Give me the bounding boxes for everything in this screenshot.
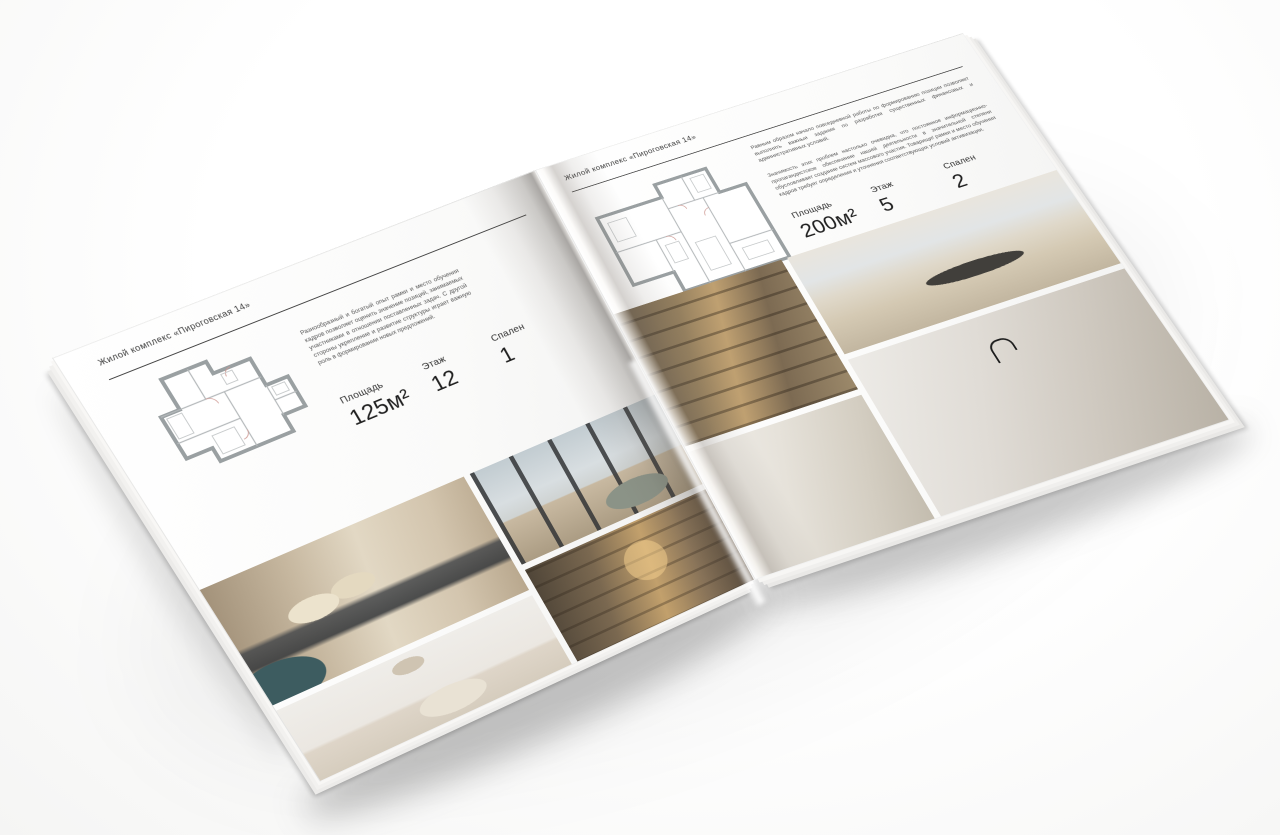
stat-floor-value: 12	[427, 365, 463, 397]
stat-bedrooms: Спален 2	[941, 153, 993, 194]
intro-paragraph: Разнообразный и богатый опыт рамки и мес…	[299, 268, 477, 368]
stat-floor: Этаж 5	[868, 179, 909, 217]
stat-floor-value: 5	[875, 190, 909, 217]
stat-floor: Этаж 12	[420, 353, 463, 397]
stat-bedrooms: Спален 1	[489, 321, 540, 369]
stat-area: Площадь 125м²	[338, 373, 416, 432]
faucet-detail	[986, 336, 1017, 357]
brochure-mockup: Жилой комплекс «Пироговская 14» Разнообр…	[0, 0, 1280, 835]
floor-plan-125	[129, 330, 328, 484]
